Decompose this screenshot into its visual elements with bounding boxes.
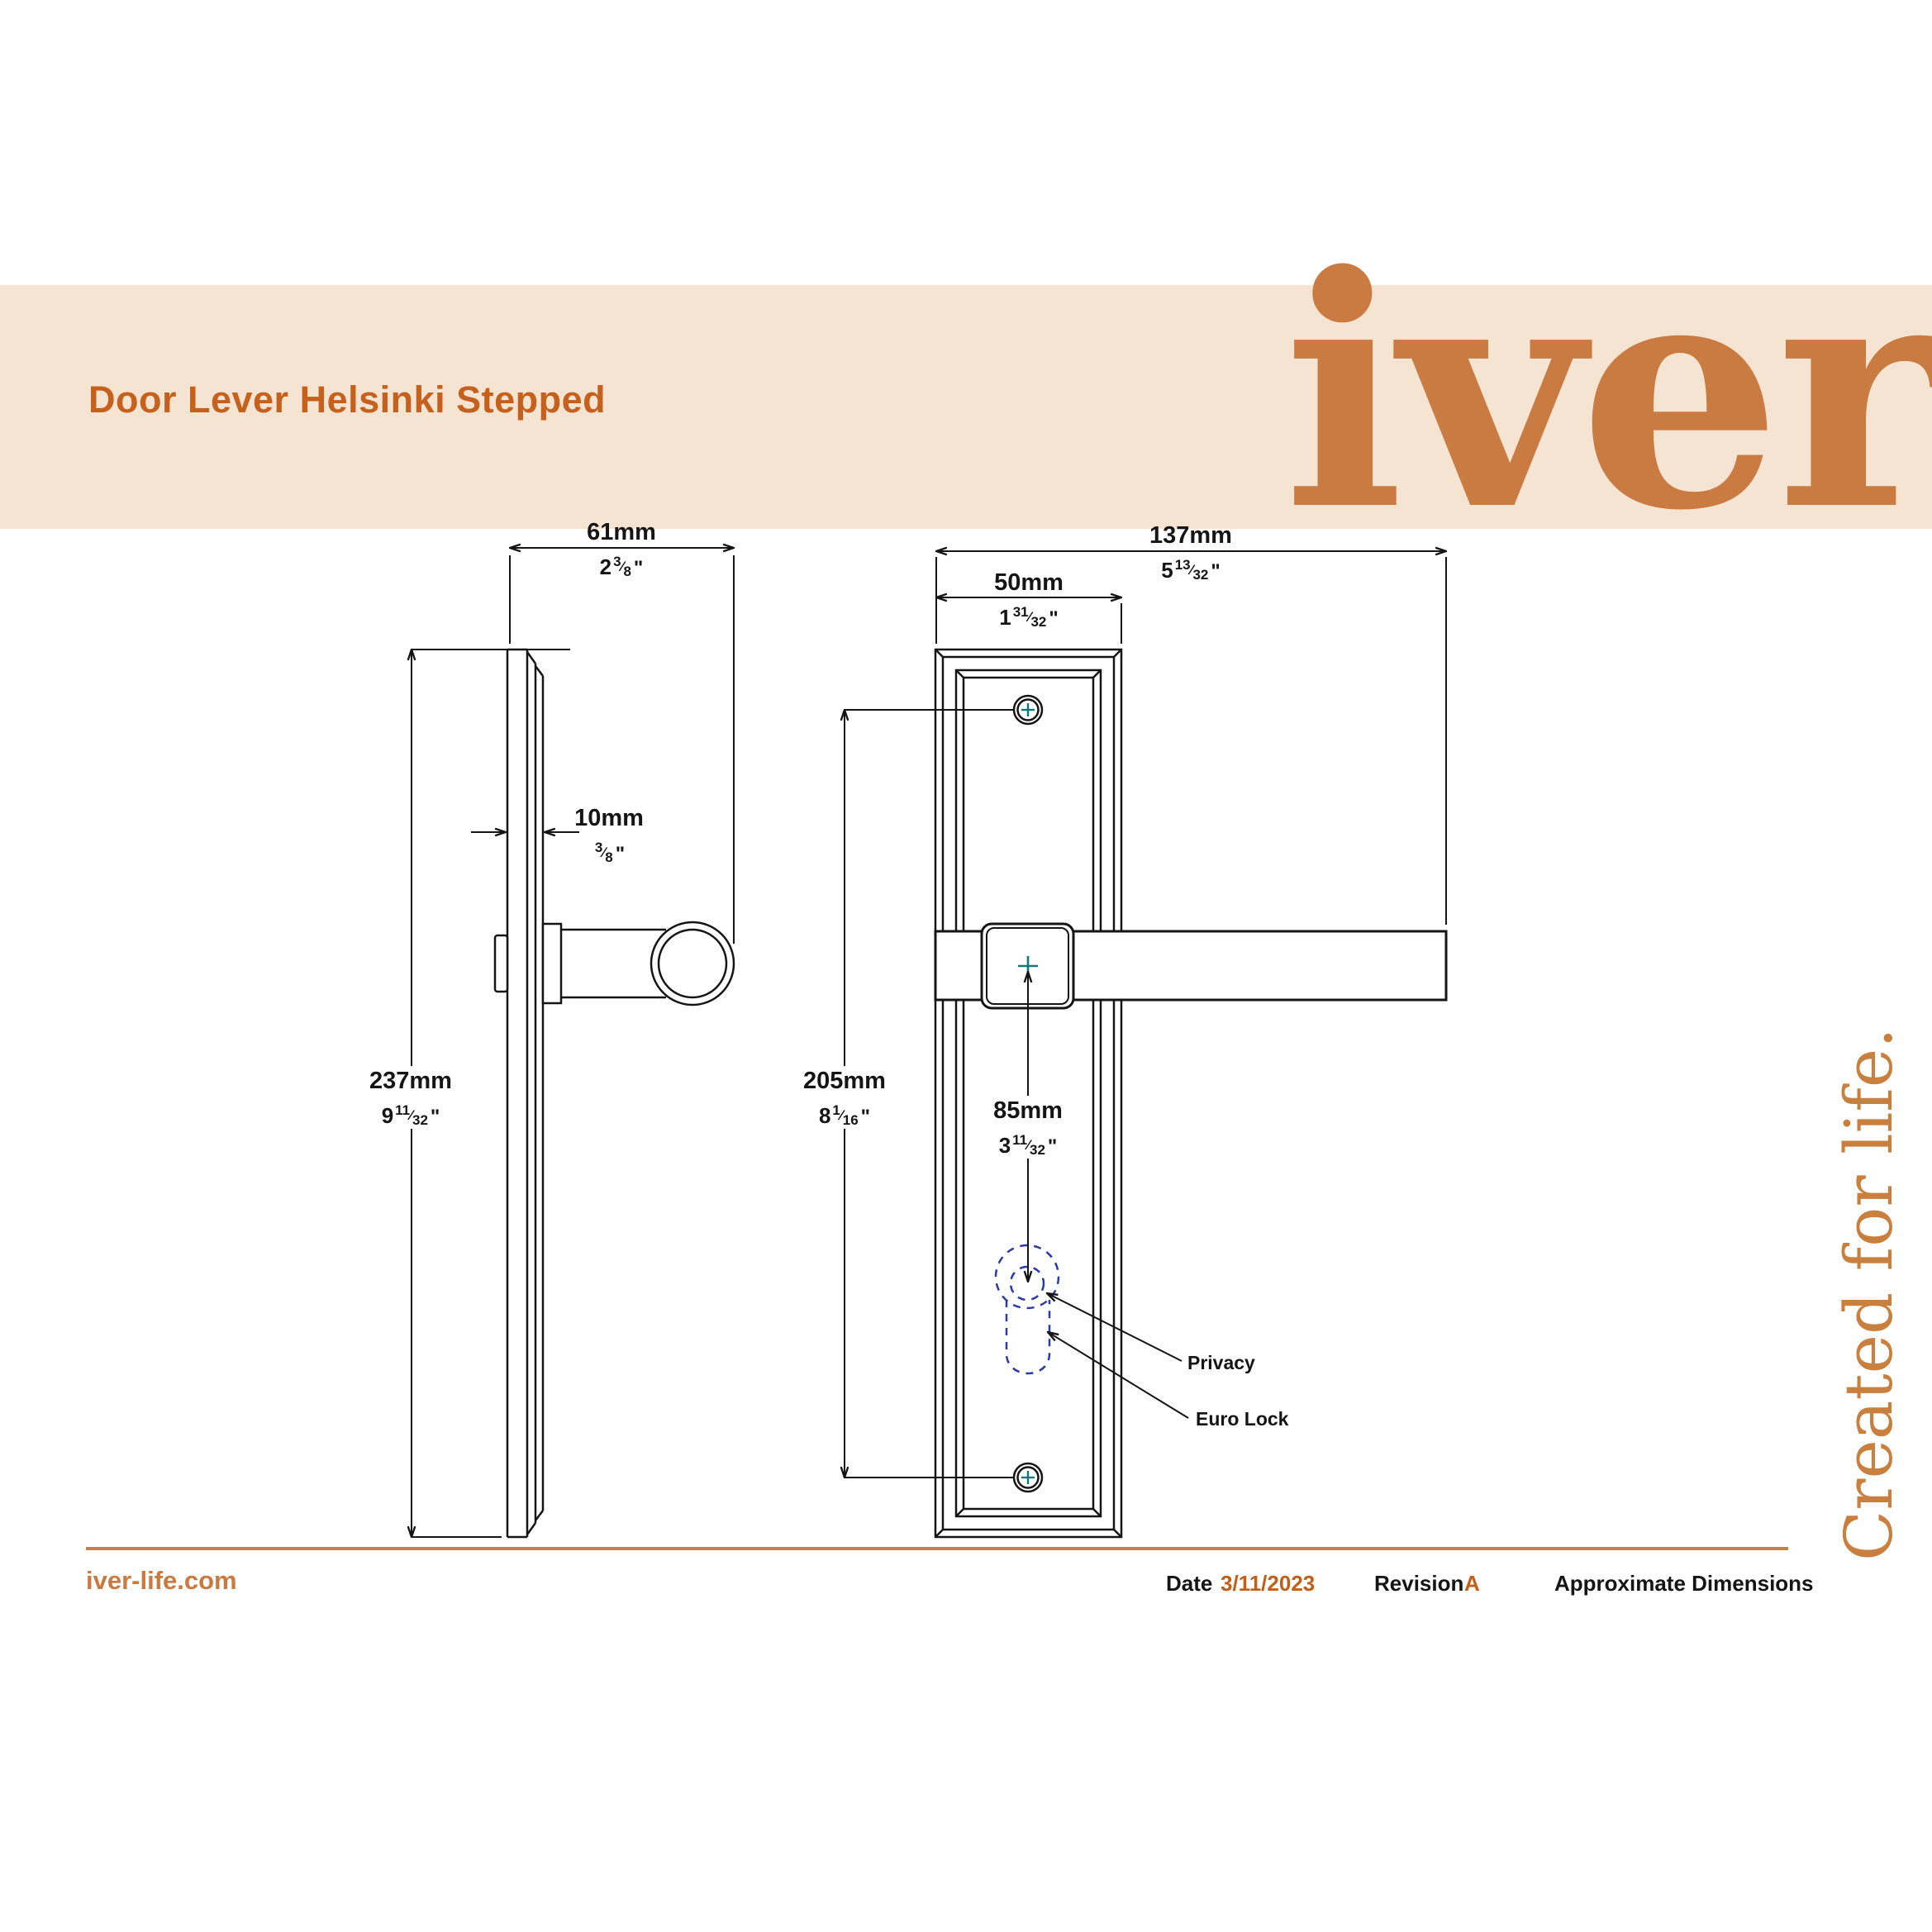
bottom-screw bbox=[1014, 1463, 1042, 1492]
dim-length-label: 137mm 513⁄32" bbox=[1149, 524, 1232, 582]
technical-drawing bbox=[0, 0, 1932, 1932]
spec-sheet: Door Lever Helsinki Stepped iver bbox=[0, 0, 1932, 1932]
dim-depth-label: 61mm 23⁄8" bbox=[587, 521, 656, 578]
side-view bbox=[495, 650, 734, 1537]
dim-centres-label: 205mm 81⁄16" bbox=[803, 1069, 886, 1127]
dim-plate-width-label: 50mm 131⁄32" bbox=[994, 571, 1064, 629]
revision-label: Revision bbox=[1374, 1571, 1463, 1597]
dim-thickness-label: 10mm 3⁄8" bbox=[574, 807, 644, 864]
dim-height-label: 237mm 911⁄32" bbox=[369, 1069, 452, 1127]
date-value: 3/11/2023 bbox=[1221, 1571, 1315, 1597]
dimension-lines bbox=[412, 548, 1446, 1537]
top-screw bbox=[1014, 696, 1042, 724]
privacy-label: Privacy bbox=[1187, 1352, 1255, 1374]
dim-keyhole-label: 85mm 311⁄32" bbox=[993, 1099, 1063, 1157]
tagline-created-for-life: Created for life. bbox=[1836, 1027, 1902, 1561]
front-view bbox=[935, 650, 1446, 1537]
side-spindle bbox=[495, 935, 507, 992]
revision-value: A bbox=[1464, 1571, 1480, 1597]
date-label: Date bbox=[1166, 1571, 1212, 1597]
euro-cylinder-outline bbox=[1006, 1300, 1049, 1373]
footer-rule bbox=[86, 1547, 1788, 1550]
euro-lock-leader bbox=[1048, 1332, 1188, 1418]
side-backplate bbox=[507, 650, 543, 1537]
website-link[interactable]: iver-life.com bbox=[86, 1566, 237, 1596]
side-grip-outer bbox=[651, 922, 734, 1005]
side-collar bbox=[543, 924, 561, 1003]
euro-lock-label: Euro Lock bbox=[1196, 1408, 1288, 1430]
approximate-dimensions-note: Approximate Dimensions bbox=[1554, 1571, 1814, 1597]
